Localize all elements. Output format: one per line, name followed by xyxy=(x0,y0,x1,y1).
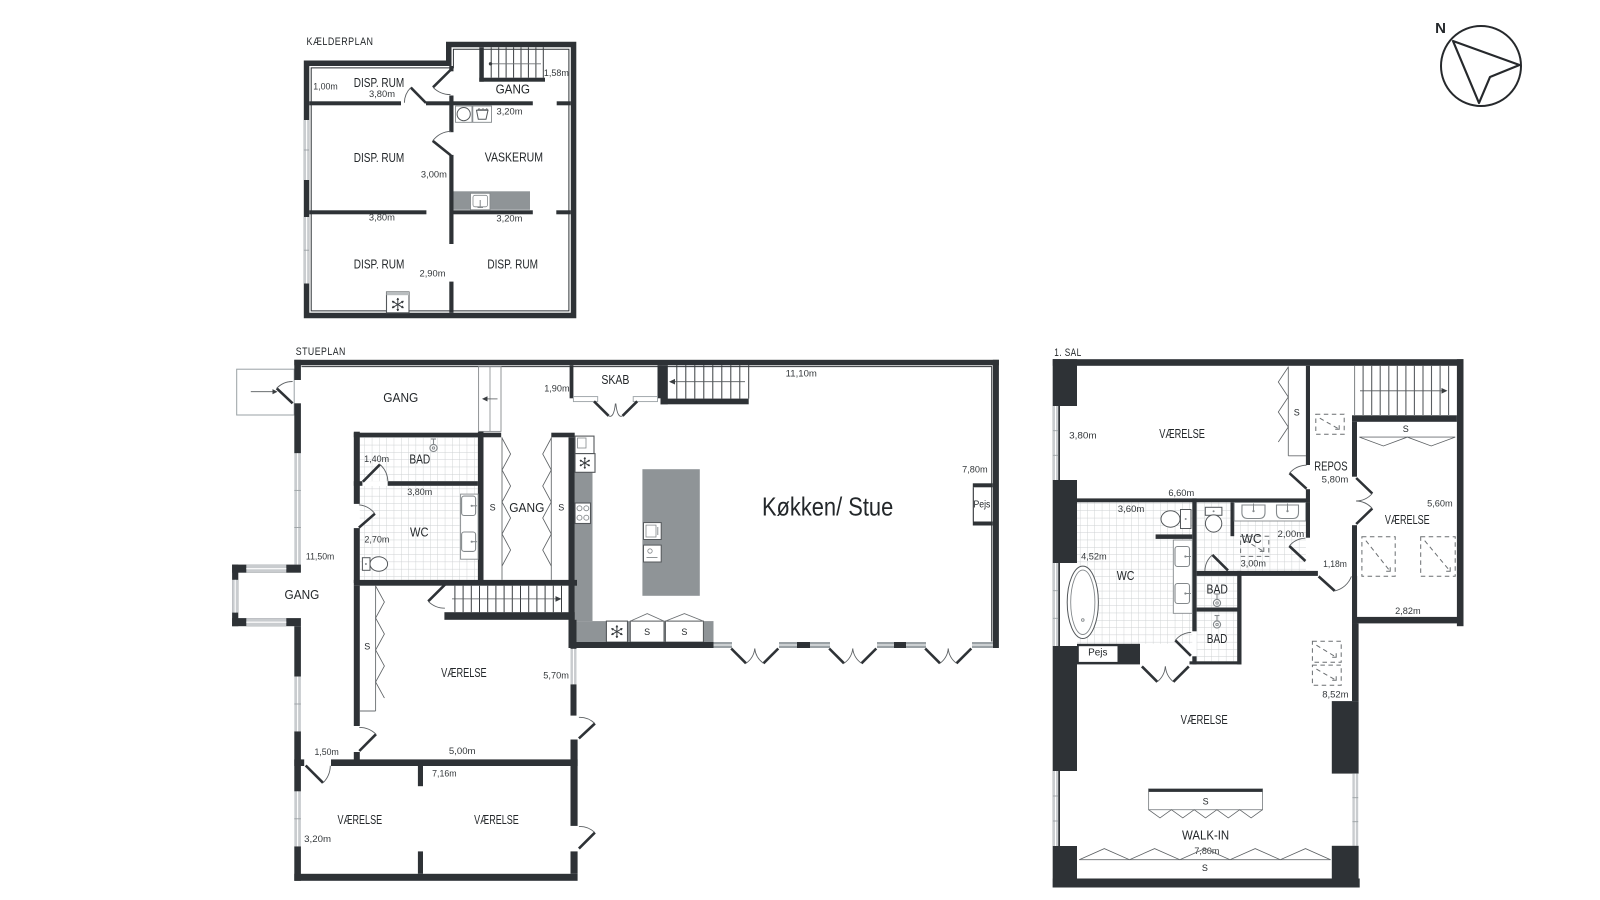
svg-text:BAD: BAD xyxy=(409,452,430,467)
svg-text:KÆLDERPLAN: KÆLDERPLAN xyxy=(307,36,374,48)
svg-text:S: S xyxy=(1403,424,1409,434)
svg-text:5,00m: 5,00m xyxy=(449,746,476,757)
svg-text:WALK-IN: WALK-IN xyxy=(1182,828,1229,843)
svg-text:S: S xyxy=(1203,797,1209,807)
svg-text:2,82m: 2,82m xyxy=(1395,606,1421,617)
svg-text:VÆRELSE: VÆRELSE xyxy=(474,812,519,827)
svg-text:4,52m: 4,52m xyxy=(1081,552,1107,563)
svg-text:GANG: GANG xyxy=(285,587,320,602)
svg-text:S: S xyxy=(558,503,564,513)
svg-text:11,50m: 11,50m xyxy=(306,551,334,562)
svg-text:GANG: GANG xyxy=(509,500,544,515)
svg-text:3,20m: 3,20m xyxy=(497,107,523,118)
svg-text:6,60m: 6,60m xyxy=(1168,488,1194,499)
svg-text:1. SAL: 1. SAL xyxy=(1054,347,1082,359)
svg-text:GANG: GANG xyxy=(383,390,418,405)
svg-text:BAD: BAD xyxy=(1207,631,1228,646)
svg-text:WC: WC xyxy=(1241,531,1261,546)
svg-text:3,80m: 3,80m xyxy=(369,213,395,224)
svg-text:S: S xyxy=(644,627,650,637)
svg-text:3,00m: 3,00m xyxy=(421,170,447,181)
svg-text:1,50m: 1,50m xyxy=(314,747,338,758)
svg-text:2,70m: 2,70m xyxy=(364,534,389,545)
svg-text:S: S xyxy=(1202,863,1208,873)
svg-text:DISP. RUM: DISP. RUM xyxy=(487,256,538,271)
svg-text:11,10m: 11,10m xyxy=(786,369,817,380)
svg-text:1,90m: 1,90m xyxy=(544,384,569,395)
svg-text:WC: WC xyxy=(410,525,429,540)
svg-text:VÆRELSE: VÆRELSE xyxy=(337,812,382,827)
svg-text:1,58m: 1,58m xyxy=(544,68,569,79)
svg-text:3,80m: 3,80m xyxy=(407,487,432,498)
svg-text:S: S xyxy=(1294,407,1300,417)
svg-text:3,20m: 3,20m xyxy=(304,834,331,845)
svg-text:3,80m: 3,80m xyxy=(1069,431,1097,442)
svg-text:7,16m: 7,16m xyxy=(432,769,457,780)
svg-text:3,80m: 3,80m xyxy=(369,89,395,100)
svg-text:VÆRELSE: VÆRELSE xyxy=(1385,512,1430,527)
svg-text:VÆRELSE: VÆRELSE xyxy=(1159,426,1205,441)
svg-text:DISP. RUM: DISP. RUM xyxy=(354,150,405,165)
svg-text:WC: WC xyxy=(1117,568,1135,583)
svg-text:5,70m: 5,70m xyxy=(543,671,569,682)
svg-text:VÆRELSE: VÆRELSE xyxy=(441,665,487,680)
svg-text:3,00m: 3,00m xyxy=(1241,558,1266,569)
svg-text:S: S xyxy=(490,503,496,513)
svg-text:SKAB: SKAB xyxy=(601,372,629,387)
svg-text:S: S xyxy=(364,642,370,652)
svg-text:3,60m: 3,60m xyxy=(1118,504,1145,515)
svg-text:5,80m: 5,80m xyxy=(1322,474,1349,485)
svg-text:2,00m: 2,00m xyxy=(1278,529,1305,540)
svg-text:1,18m: 1,18m xyxy=(1323,559,1347,570)
svg-text:VASKERUM: VASKERUM xyxy=(485,150,543,165)
svg-text:Pejs: Pejs xyxy=(973,499,990,510)
svg-text:VÆRELSE: VÆRELSE xyxy=(1181,712,1228,727)
svg-text:1,40m: 1,40m xyxy=(364,454,389,465)
svg-text:1,00m: 1,00m xyxy=(313,82,338,93)
svg-text:DISP. RUM: DISP. RUM xyxy=(354,75,405,90)
svg-text:N: N xyxy=(1435,20,1446,37)
svg-text:5,60m: 5,60m xyxy=(1427,498,1453,509)
svg-text:S: S xyxy=(681,627,687,637)
svg-text:2,90m: 2,90m xyxy=(420,269,446,280)
svg-text:DISP. RUM: DISP. RUM xyxy=(354,256,405,271)
svg-text:8,52m: 8,52m xyxy=(1322,689,1348,700)
svg-text:GANG: GANG xyxy=(496,82,530,97)
svg-text:Køkken/ Stue: Køkken/ Stue xyxy=(762,492,893,522)
svg-text:REPOS: REPOS xyxy=(1314,458,1348,473)
svg-text:STUEPLAN: STUEPLAN xyxy=(296,346,346,358)
svg-text:7,80m: 7,80m xyxy=(962,464,988,475)
svg-text:BAD: BAD xyxy=(1207,582,1228,597)
svg-text:3,20m: 3,20m xyxy=(496,213,522,224)
svg-text:Pejs: Pejs xyxy=(1088,647,1107,658)
